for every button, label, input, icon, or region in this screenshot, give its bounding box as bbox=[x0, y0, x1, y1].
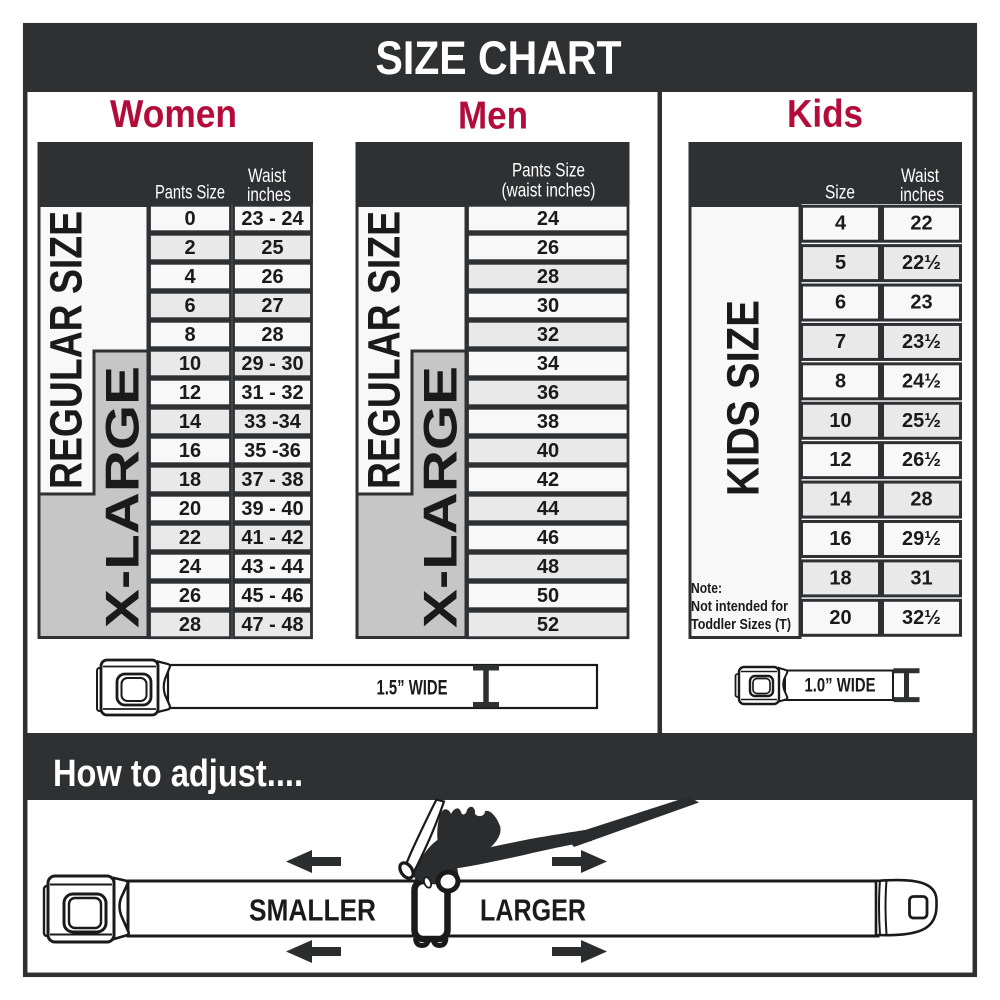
svg-text:16: 16 bbox=[829, 528, 851, 550]
svg-text:Waist: Waist bbox=[901, 166, 940, 187]
svg-text:10: 10 bbox=[829, 410, 851, 432]
svg-text:LARGER: LARGER bbox=[480, 893, 586, 928]
svg-text:Women: Women bbox=[110, 93, 237, 136]
svg-text:34: 34 bbox=[537, 353, 560, 375]
svg-text:28: 28 bbox=[910, 489, 932, 511]
svg-text:Pants Size: Pants Size bbox=[512, 161, 585, 182]
svg-text:0: 0 bbox=[184, 208, 195, 230]
svg-text:6: 6 bbox=[835, 292, 846, 314]
svg-text:18: 18 bbox=[179, 469, 201, 491]
svg-text:25½: 25½ bbox=[902, 410, 941, 432]
svg-text:Note:: Note: bbox=[691, 580, 722, 597]
svg-text:50: 50 bbox=[537, 585, 559, 607]
svg-text:inches: inches bbox=[247, 185, 291, 206]
svg-text:X-LARGE: X-LARGE bbox=[414, 366, 467, 628]
svg-text:8: 8 bbox=[184, 324, 195, 346]
svg-text:25: 25 bbox=[261, 237, 283, 259]
svg-text:44: 44 bbox=[537, 498, 560, 520]
svg-text:24½: 24½ bbox=[902, 370, 941, 392]
svg-text:30: 30 bbox=[537, 295, 559, 317]
svg-text:Not intended for: Not intended for bbox=[691, 598, 788, 615]
svg-text:18: 18 bbox=[829, 567, 851, 589]
svg-text:1.5” WIDE: 1.5” WIDE bbox=[377, 677, 448, 700]
svg-text:26: 26 bbox=[261, 266, 283, 288]
svg-text:2: 2 bbox=[184, 237, 195, 259]
svg-text:20: 20 bbox=[179, 498, 201, 520]
svg-text:24: 24 bbox=[179, 556, 202, 578]
svg-text:23: 23 bbox=[910, 292, 932, 314]
svg-text:36: 36 bbox=[537, 382, 559, 404]
svg-text:42: 42 bbox=[537, 469, 559, 491]
svg-text:28: 28 bbox=[537, 266, 559, 288]
svg-text:12: 12 bbox=[829, 449, 851, 471]
svg-text:45 - 46: 45 - 46 bbox=[241, 585, 303, 607]
svg-text:Waist: Waist bbox=[248, 166, 287, 187]
svg-text:4: 4 bbox=[184, 266, 196, 288]
svg-text:(waist inches): (waist inches) bbox=[502, 181, 596, 202]
svg-text:Kids: Kids bbox=[787, 93, 863, 136]
svg-text:1.0” WIDE: 1.0” WIDE bbox=[805, 676, 876, 697]
svg-text:47 - 48: 47 - 48 bbox=[241, 614, 303, 636]
svg-text:43 - 44: 43 - 44 bbox=[241, 556, 304, 578]
svg-text:14: 14 bbox=[829, 489, 852, 511]
svg-text:41 - 42: 41 - 42 bbox=[241, 527, 303, 549]
svg-text:23½: 23½ bbox=[902, 331, 941, 353]
svg-text:20: 20 bbox=[829, 607, 851, 629]
svg-text:38: 38 bbox=[537, 411, 559, 433]
svg-text:How to adjust....: How to adjust.... bbox=[53, 753, 303, 795]
svg-text:Toddler Sizes (T): Toddler Sizes (T) bbox=[691, 616, 791, 633]
svg-text:6: 6 bbox=[184, 295, 195, 317]
svg-text:24: 24 bbox=[537, 208, 560, 230]
svg-text:SIZE CHART: SIZE CHART bbox=[376, 31, 622, 84]
svg-text:22: 22 bbox=[179, 527, 201, 549]
svg-text:46: 46 bbox=[537, 527, 559, 549]
svg-text:37 - 38: 37 - 38 bbox=[241, 469, 303, 491]
svg-text:KIDS SIZE: KIDS SIZE bbox=[718, 300, 769, 496]
svg-text:4: 4 bbox=[835, 213, 847, 235]
svg-text:SMALLER: SMALLER bbox=[249, 893, 376, 928]
svg-text:12: 12 bbox=[179, 382, 201, 404]
svg-text:REGULAR SIZE: REGULAR SIZE bbox=[41, 211, 92, 489]
svg-text:26: 26 bbox=[537, 237, 559, 259]
svg-text:52: 52 bbox=[537, 614, 559, 636]
svg-text:23 - 24: 23 - 24 bbox=[241, 208, 304, 230]
svg-text:26½: 26½ bbox=[902, 449, 941, 471]
svg-text:REGULAR SIZE: REGULAR SIZE bbox=[359, 211, 410, 489]
svg-text:28: 28 bbox=[179, 614, 201, 636]
svg-text:31 - 32: 31 - 32 bbox=[241, 382, 303, 404]
svg-text:28: 28 bbox=[261, 324, 283, 346]
svg-text:32½: 32½ bbox=[902, 607, 941, 629]
svg-text:7: 7 bbox=[835, 331, 846, 353]
svg-text:26: 26 bbox=[179, 585, 201, 607]
svg-text:27: 27 bbox=[261, 295, 283, 317]
svg-text:29 - 30: 29 - 30 bbox=[241, 353, 303, 375]
svg-text:35 -36: 35 -36 bbox=[244, 440, 301, 462]
svg-text:Pants Size: Pants Size bbox=[155, 183, 225, 204]
svg-text:8: 8 bbox=[835, 370, 846, 392]
svg-text:inches: inches bbox=[900, 185, 944, 206]
svg-text:39 - 40: 39 - 40 bbox=[241, 498, 303, 520]
svg-text:5: 5 bbox=[835, 252, 846, 274]
svg-text:48: 48 bbox=[537, 556, 559, 578]
svg-text:32: 32 bbox=[537, 324, 559, 346]
svg-text:Men: Men bbox=[458, 95, 528, 138]
svg-text:Size: Size bbox=[825, 183, 855, 204]
svg-text:40: 40 bbox=[537, 440, 559, 462]
svg-text:31: 31 bbox=[910, 567, 932, 589]
svg-text:X-LARGE: X-LARGE bbox=[96, 366, 149, 628]
svg-text:22: 22 bbox=[910, 213, 932, 235]
svg-text:22½: 22½ bbox=[902, 252, 941, 274]
svg-text:14: 14 bbox=[179, 411, 202, 433]
svg-text:33 -34: 33 -34 bbox=[244, 411, 302, 433]
svg-text:16: 16 bbox=[179, 440, 201, 462]
svg-text:29½: 29½ bbox=[902, 528, 941, 550]
svg-text:10: 10 bbox=[179, 353, 201, 375]
